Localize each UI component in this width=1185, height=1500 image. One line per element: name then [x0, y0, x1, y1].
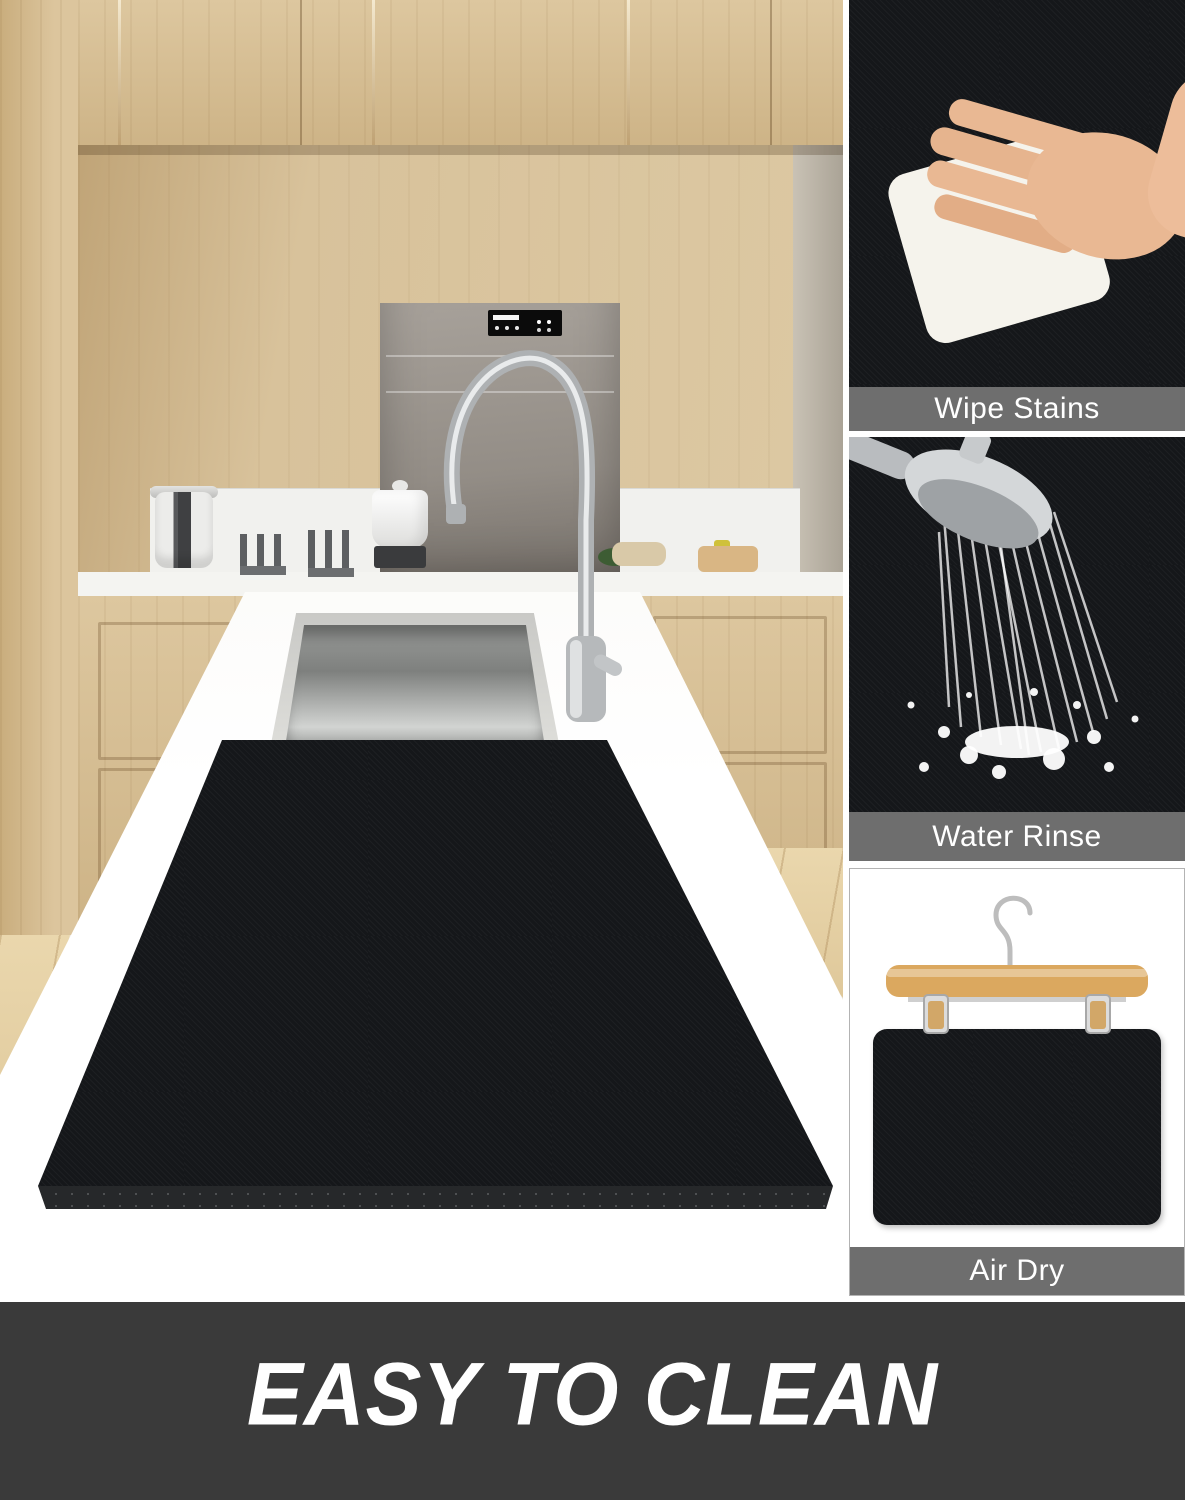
wipe-stains-label-text: Wipe Stains [934, 392, 1100, 426]
hanger [850, 869, 1184, 1247]
air-dry-panel: Air Dry [849, 868, 1185, 1296]
hanger-clip [1086, 995, 1110, 1033]
kitchen-scene-photo [0, 0, 843, 1302]
water-rinse-label: Water Rinse [849, 812, 1185, 861]
wipe-stains-panel: Wipe Stains [849, 0, 1185, 431]
faucet-spout [446, 504, 466, 524]
shower-head [849, 437, 1073, 566]
hanger-clip [924, 995, 948, 1033]
water-spray [939, 512, 1117, 755]
water-rinse-panel: Water Rinse [849, 437, 1185, 861]
hanger-hook [996, 898, 1030, 965]
hand-wiping-cloth [849, 0, 1185, 387]
product-image: Wipe Stains [0, 0, 1185, 1500]
air-dry-label: Air Dry [850, 1247, 1184, 1295]
shower-spray [849, 437, 1185, 812]
wipe-stains-photo [849, 0, 1185, 387]
wipe-stains-label: Wipe Stains [849, 387, 1185, 431]
easy-to-clean-banner: EASY TO CLEAN [0, 1302, 1185, 1500]
water-rinse-label-text: Water Rinse [932, 820, 1101, 854]
water-rinse-photo [849, 437, 1185, 812]
feature-panels-column: Wipe Stains [849, 0, 1185, 1302]
air-dry-label-text: Air Dry [969, 1254, 1064, 1288]
banner-text: EASY TO CLEAN [247, 1342, 938, 1460]
faucet [0, 0, 843, 1302]
